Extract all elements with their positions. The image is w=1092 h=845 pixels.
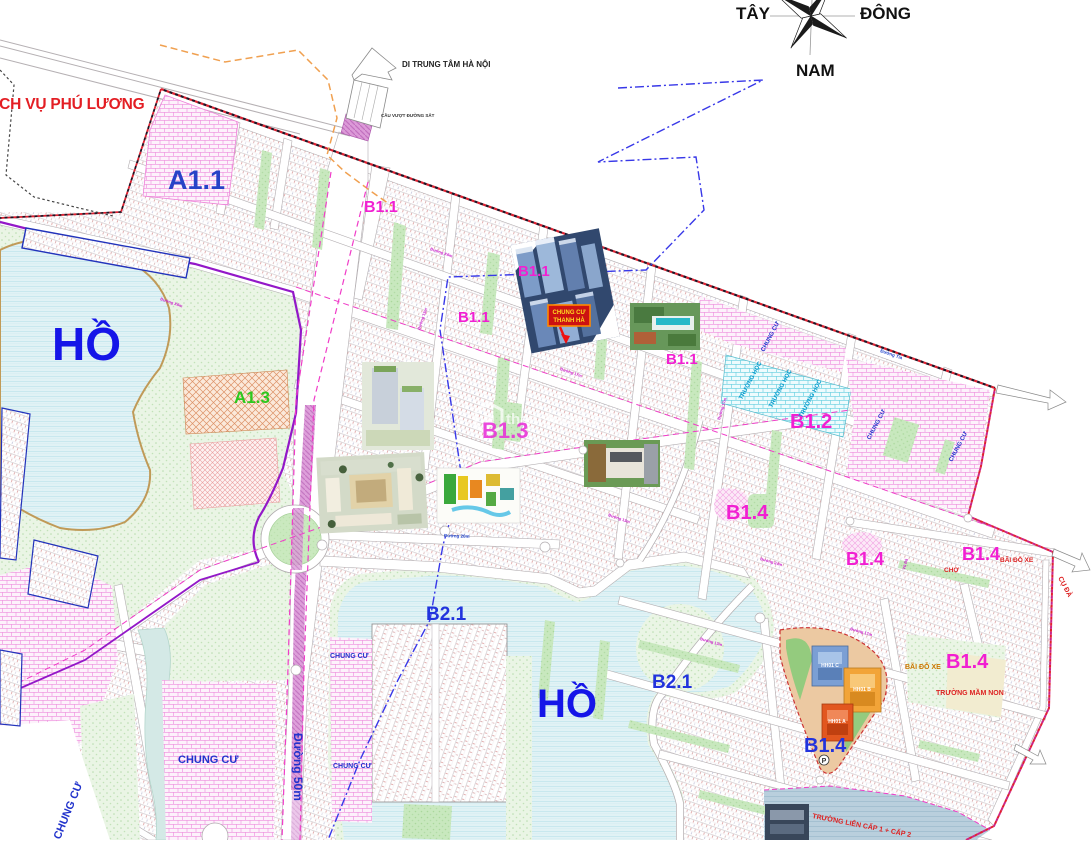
svg-text:BÃI ĐỖ XE: BÃI ĐỖ XE	[905, 662, 941, 671]
svg-text:A1.3: A1.3	[234, 388, 270, 407]
svg-text:ĐÔNG: ĐÔNG	[860, 4, 911, 23]
svg-text:B1.4: B1.4	[726, 502, 769, 524]
svg-text:B1.1: B1.1	[518, 263, 550, 280]
svg-text:CHUNG CƯ: CHUNG CƯ	[330, 653, 369, 660]
svg-text:THANH HÀ: THANH HÀ	[553, 317, 585, 324]
svg-text:CẦU VƯỢT ĐƯỜNG SẮT: CẦU VƯỢT ĐƯỜNG SẮT	[381, 111, 435, 118]
svg-text:P: P	[822, 758, 827, 765]
svg-text:TÂY: TÂY	[736, 4, 771, 23]
svg-text:B1.4: B1.4	[946, 651, 989, 673]
svg-text:BÃI ĐỖ XE: BÃI ĐỖ XE	[1000, 555, 1034, 564]
svg-text:A1.1: A1.1	[168, 165, 225, 195]
svg-text:B2.1: B2.1	[426, 604, 467, 625]
svg-text:HH01 B: HH01 B	[853, 687, 871, 693]
svg-text:Đường 20m: Đường 20m	[444, 533, 470, 539]
svg-text:B1.1: B1.1	[666, 351, 698, 368]
svg-text:HỒ: HỒ	[537, 680, 597, 726]
svg-text:CHUNG CƯ: CHUNG CƯ	[333, 763, 372, 770]
svg-text:NAM: NAM	[796, 61, 835, 80]
svg-text:CHUNG CƯ: CHUNG CƯ	[178, 754, 239, 766]
svg-text:DI TRUNG TÂM HÀ NỘI: DI TRUNG TÂM HÀ NỘI	[402, 60, 490, 69]
svg-text:DỊCH VỤ PHÚ LƯƠNG: DỊCH VỤ PHÚ LƯƠNG	[0, 95, 145, 113]
svg-text:B1.2: B1.2	[790, 411, 832, 433]
svg-text:HH01 A: HH01 A	[828, 719, 846, 725]
svg-text:B1.3: B1.3	[482, 418, 528, 443]
svg-text:HH01 C: HH01 C	[821, 663, 839, 669]
svg-text:CHỢ: CHỢ	[944, 567, 959, 574]
svg-text:B1.4: B1.4	[846, 549, 884, 569]
svg-text:CHUNG CƯ: CHUNG CƯ	[553, 310, 586, 316]
svg-text:B1.1: B1.1	[458, 309, 490, 326]
svg-text:B1.4: B1.4	[962, 544, 1000, 564]
svg-text:Đường 50m: Đường 50m	[291, 733, 305, 801]
svg-text:B1.1: B1.1	[364, 199, 398, 216]
svg-text:HỒ: HỒ	[52, 318, 121, 370]
svg-text:B1.4: B1.4	[804, 735, 847, 757]
svg-text:B2.1: B2.1	[652, 672, 693, 693]
